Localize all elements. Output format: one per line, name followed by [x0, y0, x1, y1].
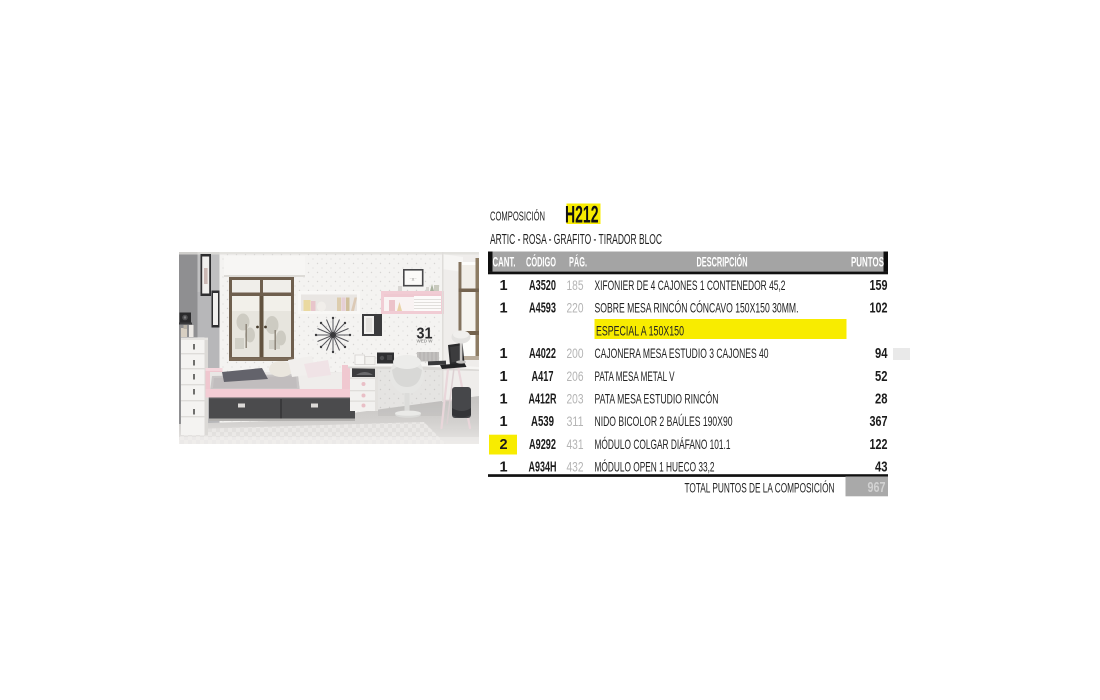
svg-text:967: 967 [868, 480, 886, 496]
svg-text:ᵔᴥᵔ: ᵔᴥᵔ [410, 277, 417, 283]
svg-text:DESCRIPCIÓN: DESCRIPCIÓN [697, 253, 748, 270]
svg-text:COMPOSICIÓN: COMPOSICIÓN [490, 209, 545, 224]
svg-text:432: 432 [567, 460, 584, 475]
svg-text:122: 122 [870, 437, 888, 453]
svg-text:200: 200 [567, 346, 584, 361]
svg-text:A4022: A4022 [529, 346, 556, 362]
svg-text:A539: A539 [531, 414, 554, 430]
svg-text:A4593: A4593 [529, 301, 556, 317]
svg-text:2: 2 [499, 437, 507, 453]
svg-text:SOBRE MESA RINCÓN CÓNCAVO 150X: SOBRE MESA RINCÓN CÓNCAVO 150X150 30MM. [595, 301, 799, 316]
svg-text:1: 1 [499, 301, 507, 317]
svg-text:1: 1 [499, 278, 507, 294]
svg-text:TOTAL PUNTOS DE LA COMPOSICIÓN: TOTAL PUNTOS DE LA COMPOSICIÓN [685, 479, 835, 496]
svg-text:A934H: A934H [529, 460, 557, 476]
svg-text:A9292: A9292 [529, 437, 556, 453]
svg-text:203: 203 [567, 392, 584, 407]
svg-text:43: 43 [875, 460, 888, 476]
svg-text:159: 159 [870, 278, 888, 294]
svg-text:CÓDIGO: CÓDIGO [526, 253, 556, 270]
svg-text:CANT.: CANT. [493, 254, 516, 270]
svg-text:PATA MESA METAL V: PATA MESA METAL V [595, 369, 675, 384]
svg-text:102: 102 [870, 301, 888, 317]
svg-text:431: 431 [567, 437, 584, 452]
svg-text:A412R: A412R [529, 392, 557, 408]
svg-text:MÓDULO OPEN 1 HUECO 33,2: MÓDULO OPEN 1 HUECO 33,2 [595, 460, 715, 475]
svg-text:PUNTOS: PUNTOS [851, 254, 884, 270]
svg-text:PÁG.: PÁG. [569, 254, 587, 270]
svg-text:1: 1 [499, 392, 507, 408]
svg-text:PATA MESA ESTUDIO RINCÓN: PATA MESA ESTUDIO RINCÓN [595, 392, 719, 407]
svg-text:220: 220 [567, 301, 584, 316]
svg-text:206: 206 [567, 369, 584, 384]
svg-text:94: 94 [875, 346, 888, 362]
svg-text:1: 1 [499, 460, 507, 476]
svg-text:CAJONERA MESA ESTUDIO 3 CAJONE: CAJONERA MESA ESTUDIO 3 CAJONES 40 [595, 346, 769, 361]
svg-text:1: 1 [499, 369, 507, 385]
svg-text:WED W: WED W [417, 338, 434, 343]
svg-text:XIFONIER DE 4 CAJONES 1 CONTEN: XIFONIER DE 4 CAJONES 1 CONTENEDOR 45,2 [595, 278, 786, 293]
svg-text:ARTIC - ROSA - GRAFITO - TIRAD: ARTIC - ROSA - GRAFITO - TIRADOR BLOC [490, 232, 662, 248]
svg-text:28: 28 [875, 392, 888, 408]
svg-text:MÓDULO COLGAR DIÁFANO 101.1: MÓDULO COLGAR DIÁFANO 101.1 [595, 437, 731, 452]
svg-text:52: 52 [875, 369, 888, 385]
svg-text:311: 311 [567, 414, 584, 429]
svg-text:1: 1 [499, 346, 507, 362]
svg-text:A417: A417 [532, 369, 554, 385]
svg-text:367: 367 [870, 414, 888, 430]
svg-text:NIDO BICOLOR 2 BAÚLES 190X90: NIDO BICOLOR 2 BAÚLES 190X90 [595, 414, 733, 429]
svg-text:185: 185 [567, 278, 584, 293]
svg-text:1: 1 [499, 414, 507, 430]
svg-text:ESPECIAL A 150X150: ESPECIAL A 150X150 [596, 323, 684, 338]
svg-text:H212: H212 [565, 201, 599, 228]
svg-text:A3520: A3520 [529, 278, 556, 294]
